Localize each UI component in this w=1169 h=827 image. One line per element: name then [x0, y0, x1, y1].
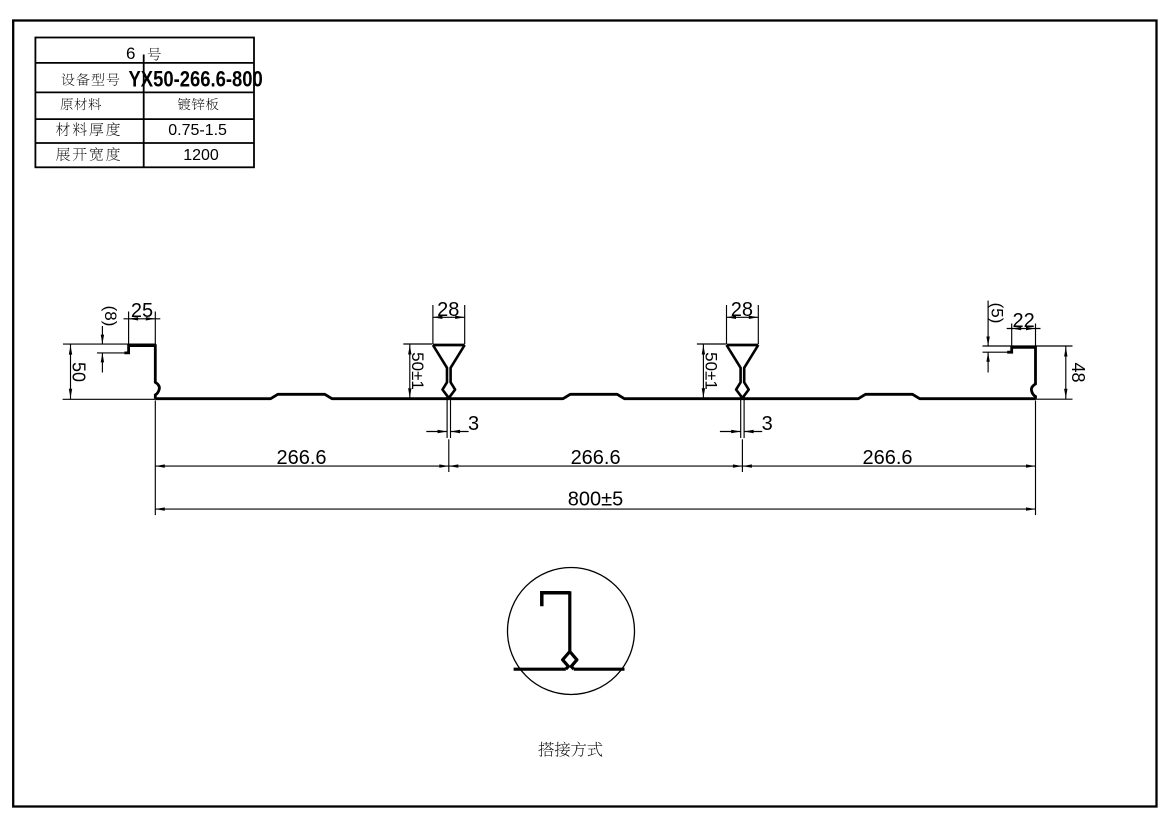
svg-text:266.6: 266.6	[571, 447, 621, 469]
svg-text:28: 28	[437, 299, 459, 321]
svg-text:YX50-266.6-800: YX50-266.6-800	[129, 67, 263, 92]
svg-text:266.6: 266.6	[276, 447, 326, 469]
svg-text:28: 28	[731, 299, 753, 321]
svg-text:50±1: 50±1	[408, 352, 427, 390]
svg-text:266.6: 266.6	[862, 447, 912, 469]
svg-text:22: 22	[1012, 310, 1034, 332]
svg-text:50: 50	[69, 362, 89, 382]
svg-text:3: 3	[762, 413, 773, 435]
svg-text:0.75-1.5: 0.75-1.5	[168, 122, 227, 139]
svg-text:1200: 1200	[183, 147, 219, 164]
svg-text:800±5: 800±5	[568, 489, 623, 511]
svg-text:(5): (5)	[988, 303, 1007, 324]
svg-text:48: 48	[1068, 362, 1088, 382]
svg-text:3: 3	[468, 413, 479, 435]
svg-text:(8): (8)	[101, 306, 120, 327]
svg-text:6: 6	[126, 44, 135, 63]
svg-text:25: 25	[131, 300, 153, 322]
svg-text:50±1: 50±1	[702, 352, 721, 390]
